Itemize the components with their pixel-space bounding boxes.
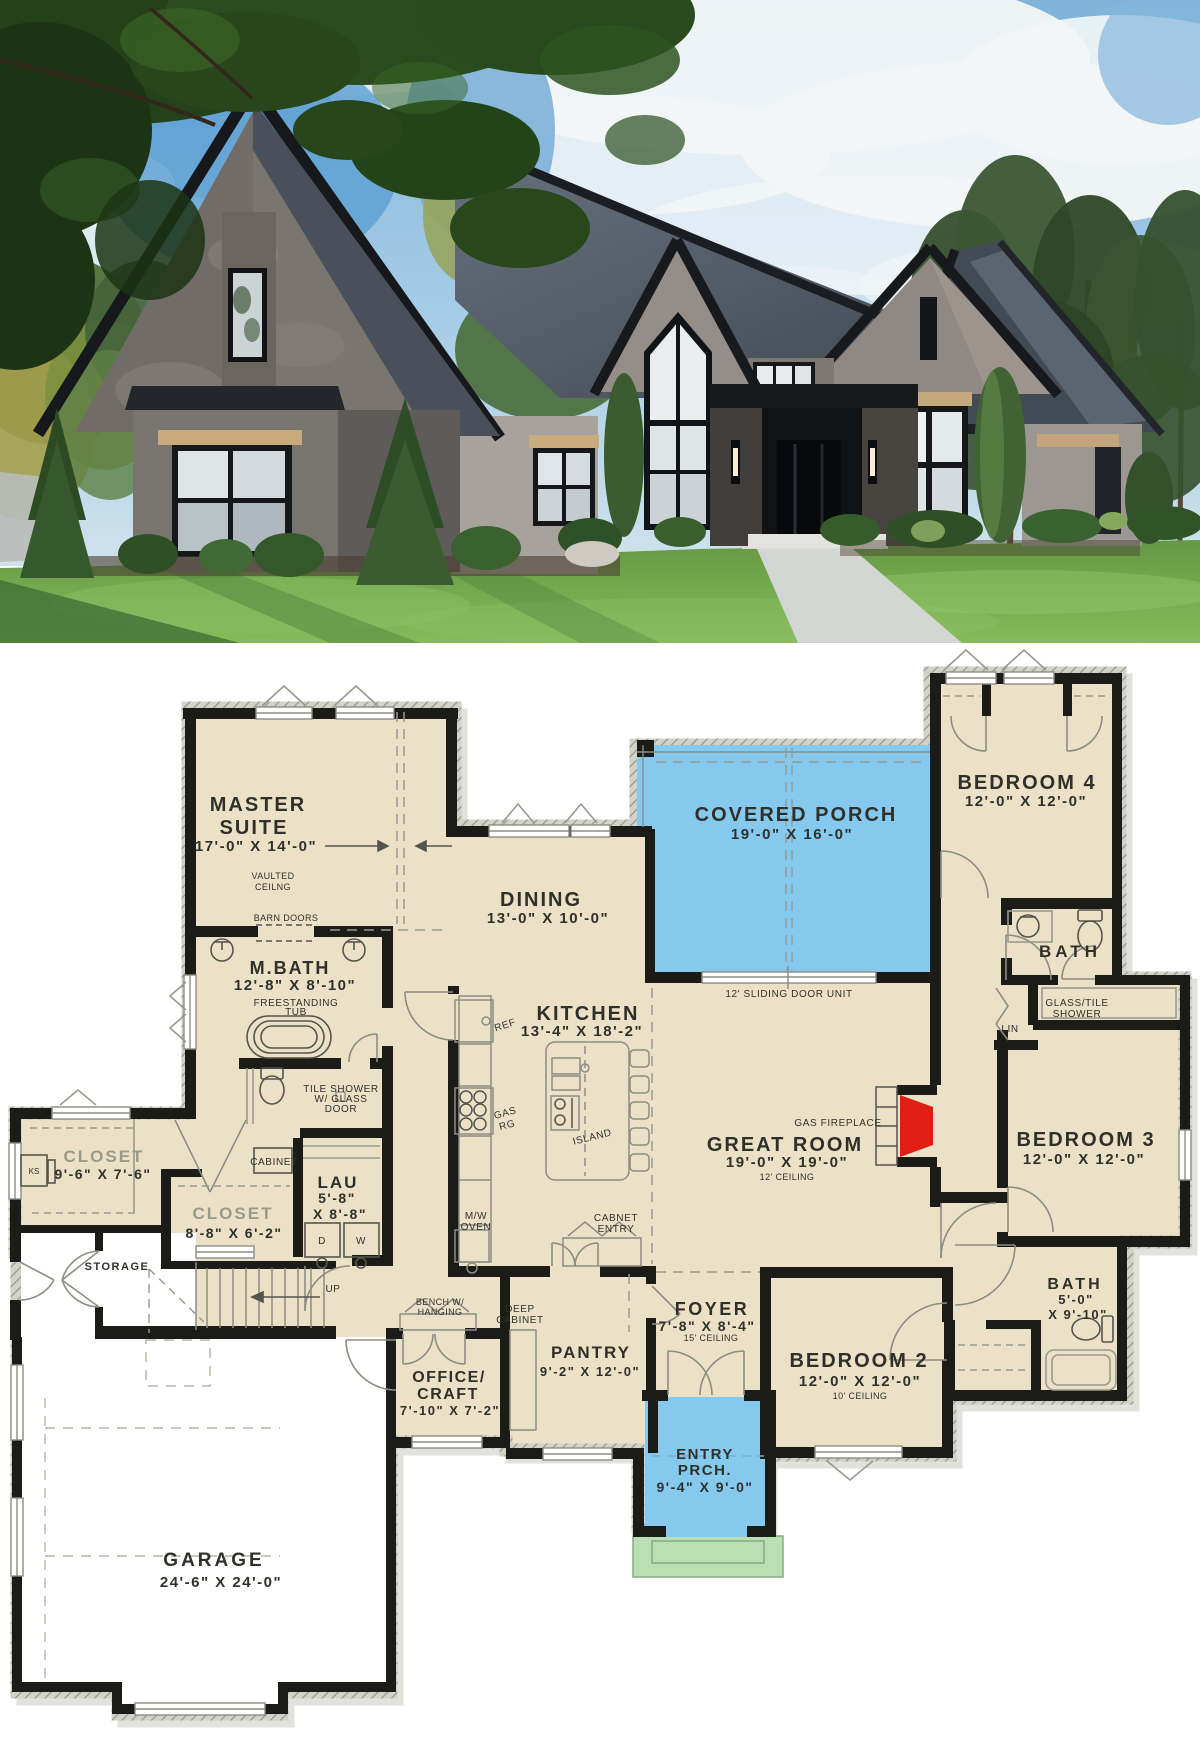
svg-text:SUITE: SUITE: [220, 817, 289, 839]
svg-text:12' SLIDING DOOR UNIT: 12' SLIDING DOOR UNIT: [725, 989, 852, 1000]
svg-text:SHOWER: SHOWER: [1053, 1009, 1102, 1020]
svg-text:BEDROOM 3: BEDROOM 3: [1016, 1129, 1155, 1151]
svg-text:DINING: DINING: [500, 889, 582, 911]
svg-text:BENCH W/: BENCH W/: [416, 1297, 464, 1307]
svg-text:MASTER: MASTER: [210, 794, 306, 816]
svg-text:CLOSET: CLOSET: [193, 1204, 274, 1223]
svg-text:CRAFT: CRAFT: [417, 1386, 479, 1403]
svg-text:X 9'-10": X 9'-10": [1048, 1307, 1108, 1322]
svg-text:CABNET: CABNET: [594, 1213, 638, 1224]
svg-text:CLOSET: CLOSET: [64, 1147, 145, 1166]
svg-text:12'-8" X 8'-10": 12'-8" X 8'-10": [234, 977, 356, 994]
svg-text:GAS FIREPLACE: GAS FIREPLACE: [794, 1118, 881, 1129]
svg-text:OFFICE/: OFFICE/: [412, 1369, 486, 1386]
svg-text:9'-2" X 12'-0": 9'-2" X 12'-0": [540, 1364, 640, 1379]
svg-text:7'-10" X 7'-2": 7'-10" X 7'-2": [400, 1403, 500, 1418]
svg-text:FOYER: FOYER: [675, 1299, 750, 1319]
svg-text:13'-0" X 10'-0": 13'-0" X 10'-0": [487, 910, 609, 927]
svg-text:GREAT ROOM: GREAT ROOM: [707, 1134, 863, 1156]
svg-text:12'-0" X 12'-0": 12'-0" X 12'-0": [965, 793, 1087, 810]
svg-text:CABINET: CABINET: [250, 1157, 298, 1168]
svg-text:PANTRY: PANTRY: [551, 1343, 631, 1362]
svg-text:CEILNG: CEILNG: [255, 882, 291, 892]
svg-text:15' CEILING: 15' CEILING: [684, 1333, 739, 1343]
svg-text:BATH: BATH: [1039, 942, 1101, 961]
svg-text:8'-8" X 6'-2": 8'-8" X 6'-2": [185, 1225, 282, 1241]
svg-text:12'-0" X 12'-0": 12'-0" X 12'-0": [1023, 1151, 1145, 1168]
svg-text:CABINET: CABINET: [496, 1315, 544, 1326]
svg-text:D: D: [318, 1236, 326, 1247]
svg-text:GARAGE: GARAGE: [163, 1550, 264, 1571]
svg-text:10' CEILING: 10' CEILING: [833, 1391, 888, 1401]
svg-text:OVEN: OVEN: [461, 1222, 492, 1233]
svg-text:12'-0" X 12'-0": 12'-0" X 12'-0": [799, 1373, 921, 1390]
svg-text:LIN: LIN: [1001, 1024, 1018, 1035]
svg-text:BEDROOM 4: BEDROOM 4: [957, 772, 1096, 794]
svg-text:COVERED PORCH: COVERED PORCH: [695, 804, 898, 826]
svg-text:9'-6" X 7'-6": 9'-6" X 7'-6": [54, 1166, 151, 1182]
svg-text:24'-6" X 24'-0": 24'-6" X 24'-0": [160, 1574, 282, 1591]
svg-text:M/W: M/W: [465, 1211, 487, 1222]
svg-text:PRCH.: PRCH.: [678, 1462, 732, 1479]
svg-text:STORAGE: STORAGE: [85, 1261, 150, 1273]
svg-text:X 8'-8": X 8'-8": [313, 1206, 367, 1222]
svg-text:13'-4" X 18'-2": 13'-4" X 18'-2": [521, 1023, 643, 1040]
svg-text:UP: UP: [325, 1284, 340, 1295]
svg-text:BARN DOORS: BARN DOORS: [254, 913, 319, 923]
svg-text:7'-8" X 8'-4": 7'-8" X 8'-4": [658, 1318, 755, 1334]
svg-text:HANGING: HANGING: [418, 1307, 463, 1317]
svg-text:19'-0" X 19'-0": 19'-0" X 19'-0": [726, 1154, 848, 1171]
svg-text:BATH: BATH: [1047, 1276, 1102, 1293]
svg-text:ENTRY: ENTRY: [676, 1446, 734, 1463]
svg-text:5'-8": 5'-8": [318, 1190, 356, 1206]
svg-text:ENTRY: ENTRY: [598, 1224, 635, 1235]
svg-text:9'-4" X 9'-0": 9'-4" X 9'-0": [656, 1479, 753, 1495]
svg-text:TUB: TUB: [285, 1007, 307, 1018]
svg-text:12' CEILING: 12' CEILING: [760, 1172, 815, 1182]
svg-text:BEDROOM 2: BEDROOM 2: [789, 1350, 928, 1372]
svg-text:17'-0" X 14'-0": 17'-0" X 14'-0": [195, 838, 317, 855]
svg-text:19'-0" X 16'-0": 19'-0" X 16'-0": [731, 826, 853, 843]
svg-text:5'-0": 5'-0": [1058, 1292, 1094, 1307]
svg-text:DOOR: DOOR: [325, 1104, 357, 1115]
svg-text:KS: KS: [29, 1167, 40, 1176]
svg-text:W: W: [356, 1236, 366, 1247]
svg-text:GLASS/TILE: GLASS/TILE: [1045, 998, 1108, 1009]
svg-text:VAULTED: VAULTED: [252, 871, 295, 881]
svg-text:M.BATH: M.BATH: [250, 958, 331, 978]
svg-text:KITCHEN: KITCHEN: [537, 1003, 640, 1025]
svg-text:DEEP: DEEP: [505, 1304, 535, 1315]
